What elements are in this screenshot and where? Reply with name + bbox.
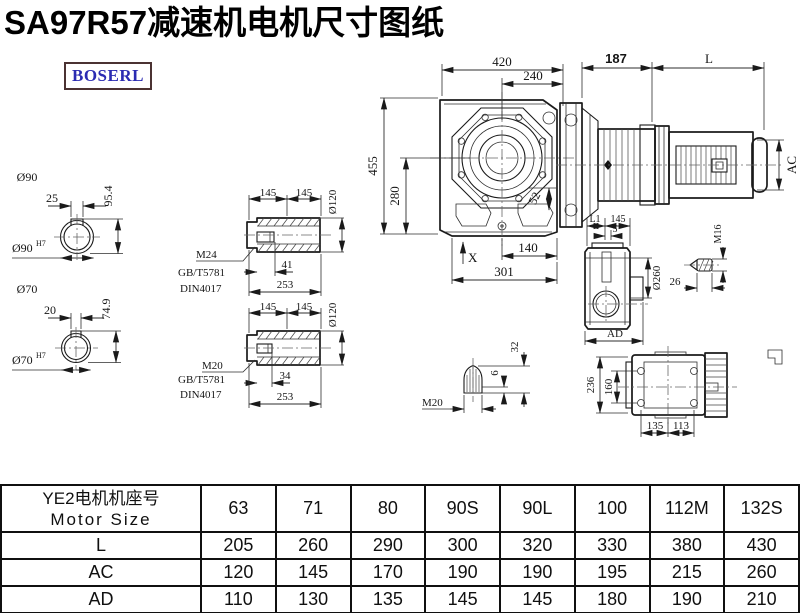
dim-key25: 25	[46, 191, 58, 205]
label-a-gb: GB/T5781	[178, 267, 225, 279]
dim-74-9: 74.9	[99, 299, 113, 320]
dim-301: 301	[494, 264, 514, 279]
dim-187: 187	[605, 51, 627, 66]
dim-key20: 20	[44, 303, 56, 317]
table-cell: 210	[724, 586, 799, 613]
dim-b-253: 253	[277, 391, 294, 403]
dim-motor-length: L	[705, 51, 713, 66]
dim-x-mark: X	[468, 250, 478, 265]
hollow-shaft-a: 145 145 Ø120 M24 GB/T5781 DIN4017 41 253	[178, 187, 344, 296]
table-cell: 145	[500, 586, 575, 613]
dim-b-145-2: 145	[296, 301, 313, 313]
dim-420: 420	[492, 54, 512, 69]
dim-bore70: Ø70	[12, 353, 33, 367]
dim-a-253: 253	[277, 279, 294, 291]
dim-160: 160	[603, 378, 615, 395]
dim-bore90: Ø90	[12, 241, 33, 255]
dim-dia70: Ø70	[17, 282, 38, 296]
label-a-din: DIN4017	[180, 283, 222, 295]
dim-cone-m20: M20	[422, 397, 443, 409]
table-cell: 170	[351, 559, 426, 586]
table-col-header: 80	[351, 485, 426, 532]
table-col-header: 100	[575, 485, 650, 532]
dim-a-dia120: Ø120	[327, 189, 339, 214]
shaft-section-90: Ø90 25 95.4 Ø90 H7	[12, 170, 123, 260]
table-col-header: 90S	[425, 485, 500, 532]
table-row-AC: AC 120 145 170 190 190 195 215 260	[1, 559, 799, 586]
label-m20: M20	[202, 360, 223, 372]
table-cell: 145	[425, 586, 500, 613]
table-col-header: 63	[201, 485, 276, 532]
table-cell: 190	[425, 559, 500, 586]
row-label: L	[1, 532, 201, 559]
dim-236: 236	[585, 376, 597, 393]
table-cell: 180	[575, 586, 650, 613]
header-cn: YE2电机机座号	[2, 488, 200, 509]
table-col-header: 132S	[724, 485, 799, 532]
dim-140: 140	[518, 240, 538, 255]
table-col-header: 112M	[650, 485, 725, 532]
dim-bore90-tol: H7	[36, 239, 46, 248]
table-cell: 260	[724, 559, 799, 586]
table-cell: 430	[724, 532, 799, 559]
dim-95-4: 95.4	[101, 186, 115, 207]
dim-240: 240	[523, 68, 543, 83]
label-b-gb: GB/T5781	[178, 374, 225, 386]
table-cell: 300	[425, 532, 500, 559]
dim-b-145-1: 145	[260, 301, 277, 313]
table-cell: 120	[201, 559, 276, 586]
dim-l1: L1	[589, 214, 600, 225]
table-cell: 110	[201, 586, 276, 613]
label-b-din: DIN4017	[180, 389, 222, 401]
table-cell: 130	[276, 586, 351, 613]
dim-ad: AD	[607, 328, 623, 340]
dim-b-dia120: Ø120	[327, 302, 339, 327]
dim-dia260: Ø260	[651, 265, 663, 290]
dim-motor-ac: AC	[784, 156, 799, 174]
dim-b-34: 34	[280, 370, 292, 382]
header-en: Motor Size	[2, 509, 200, 530]
dim-a-145-1: 145	[260, 187, 277, 199]
table-cell: 205	[201, 532, 276, 559]
dim-cone-32: 32	[509, 342, 521, 353]
table-row-AD: AD 110 130 135 145 145 180 190 210	[1, 586, 799, 613]
dim-a-41: 41	[282, 259, 293, 271]
dim-bore70-tol: H7	[36, 351, 46, 360]
gearbox-top-view: 236 160 135 113	[585, 346, 782, 437]
label-m24: M24	[196, 249, 217, 261]
table-cell: 195	[575, 559, 650, 586]
front-view-geometry	[430, 92, 575, 246]
row-label: AC	[1, 559, 201, 586]
dim-455: 455	[365, 156, 380, 176]
table-header-row: YE2电机机座号 Motor Size 63 71 80 90S 90L 100…	[1, 485, 799, 532]
dim-280: 280	[387, 186, 402, 206]
hollow-shaft-b: 145 145 Ø120 M20 GB/T5781 DIN4017 34 253	[178, 301, 344, 408]
table-cell: 190	[500, 559, 575, 586]
dim-side-5: 5	[613, 224, 618, 235]
dim-113: 113	[673, 420, 690, 432]
table-cell: 380	[650, 532, 725, 559]
row-label: AD	[1, 586, 201, 613]
table-corner-header: YE2电机机座号 Motor Size	[1, 485, 201, 532]
motor-side-view: 187 L AC	[556, 51, 799, 227]
table-cell: 290	[351, 532, 426, 559]
table-cell: 145	[276, 559, 351, 586]
shaft-section-70: Ø70 20 74.9 Ø70 H7	[12, 282, 121, 370]
clamp-detail	[768, 350, 782, 364]
dim-a-145-2: 145	[296, 187, 313, 199]
table-cell: 330	[575, 532, 650, 559]
table-cell: 260	[276, 532, 351, 559]
dim-135: 135	[647, 420, 664, 432]
technical-drawing: 420 240 455 280 52 140	[0, 0, 800, 460]
table-cell: 215	[650, 559, 725, 586]
dim-m16: M16	[713, 225, 724, 244]
table-cell: 320	[500, 532, 575, 559]
table-cell: 135	[351, 586, 426, 613]
dim-dia90: Ø90	[17, 170, 38, 184]
table-col-header: 90L	[500, 485, 575, 532]
gearbox-front-view: 420 240 455 280 52 140	[365, 54, 575, 284]
dim-26: 26	[670, 276, 682, 288]
motor-size-table: YE2电机机座号 Motor Size 63 71 80 90S 90L 100…	[0, 484, 800, 613]
gearbox-side-view: L1 145 5 Ø260 AD	[585, 214, 663, 345]
table-col-header: 71	[276, 485, 351, 532]
table-cell: 190	[650, 586, 725, 613]
plug-bolt-m16: M16 26	[670, 225, 728, 292]
cone-shaft-end: M20 6 32	[422, 342, 530, 414]
table-row-L: L 205 260 290 300 320 330 380 430	[1, 532, 799, 559]
drawing-sheet: SA97R57减速机电机尺寸图纸 BOSERL	[0, 0, 800, 613]
motor-geometry	[556, 103, 782, 227]
dim-cone-6: 6	[489, 370, 501, 376]
